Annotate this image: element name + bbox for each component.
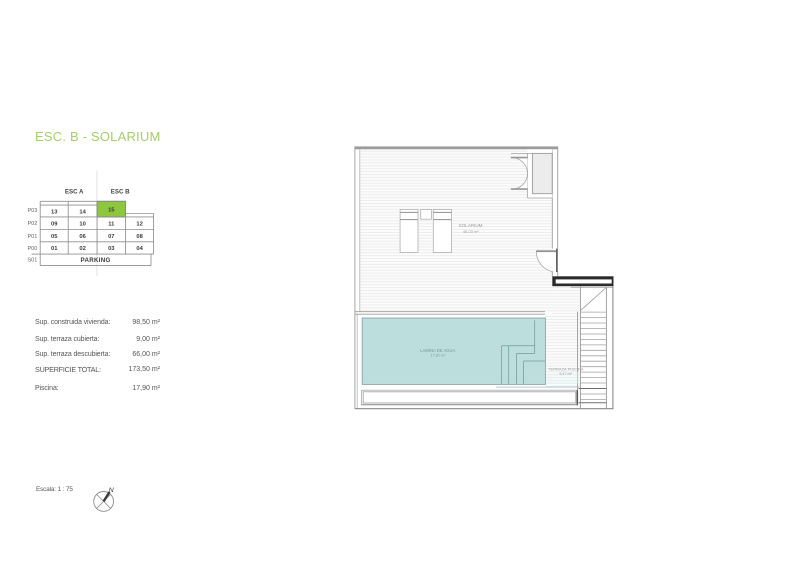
svg-text:P02: P02 xyxy=(27,221,37,227)
svg-text:P03: P03 xyxy=(27,208,37,214)
svg-text:17,91 m²: 17,91 m² xyxy=(431,354,447,358)
svg-text:15: 15 xyxy=(108,207,115,213)
svg-text:P00: P00 xyxy=(27,246,37,252)
svg-text:04: 04 xyxy=(136,246,143,252)
svg-text:13: 13 xyxy=(51,209,58,215)
svg-text:10: 10 xyxy=(79,221,85,227)
svg-text:06: 06 xyxy=(79,234,86,240)
svg-text:08: 08 xyxy=(136,234,143,240)
svg-text:12: 12 xyxy=(136,221,142,227)
svg-text:9,47 m²: 9,47 m² xyxy=(559,372,572,376)
svg-text:P01: P01 xyxy=(27,234,37,240)
svg-text:09: 09 xyxy=(51,221,58,227)
svg-text:ESC A: ESC A xyxy=(65,188,84,195)
svg-text:11: 11 xyxy=(108,221,115,227)
svg-text:LAMINA DE AGUA: LAMINA DE AGUA xyxy=(420,348,455,353)
svg-text:46,23 m²: 46,23 m² xyxy=(463,229,479,234)
svg-text:14: 14 xyxy=(79,209,86,215)
svg-text:SOLARIUM: SOLARIUM xyxy=(459,223,483,228)
svg-text:01: 01 xyxy=(51,246,58,252)
svg-text:02: 02 xyxy=(79,246,85,252)
svg-text:TERRAZA PISCINA: TERRAZA PISCINA xyxy=(548,366,584,371)
svg-text:N: N xyxy=(109,487,114,494)
svg-text:S01: S01 xyxy=(27,258,37,264)
svg-text:07: 07 xyxy=(108,234,114,240)
svg-text:PARKING: PARKING xyxy=(81,257,111,264)
svg-text:03: 03 xyxy=(108,246,115,252)
svg-text:05: 05 xyxy=(51,234,58,240)
svg-text:ESC B: ESC B xyxy=(111,188,130,195)
